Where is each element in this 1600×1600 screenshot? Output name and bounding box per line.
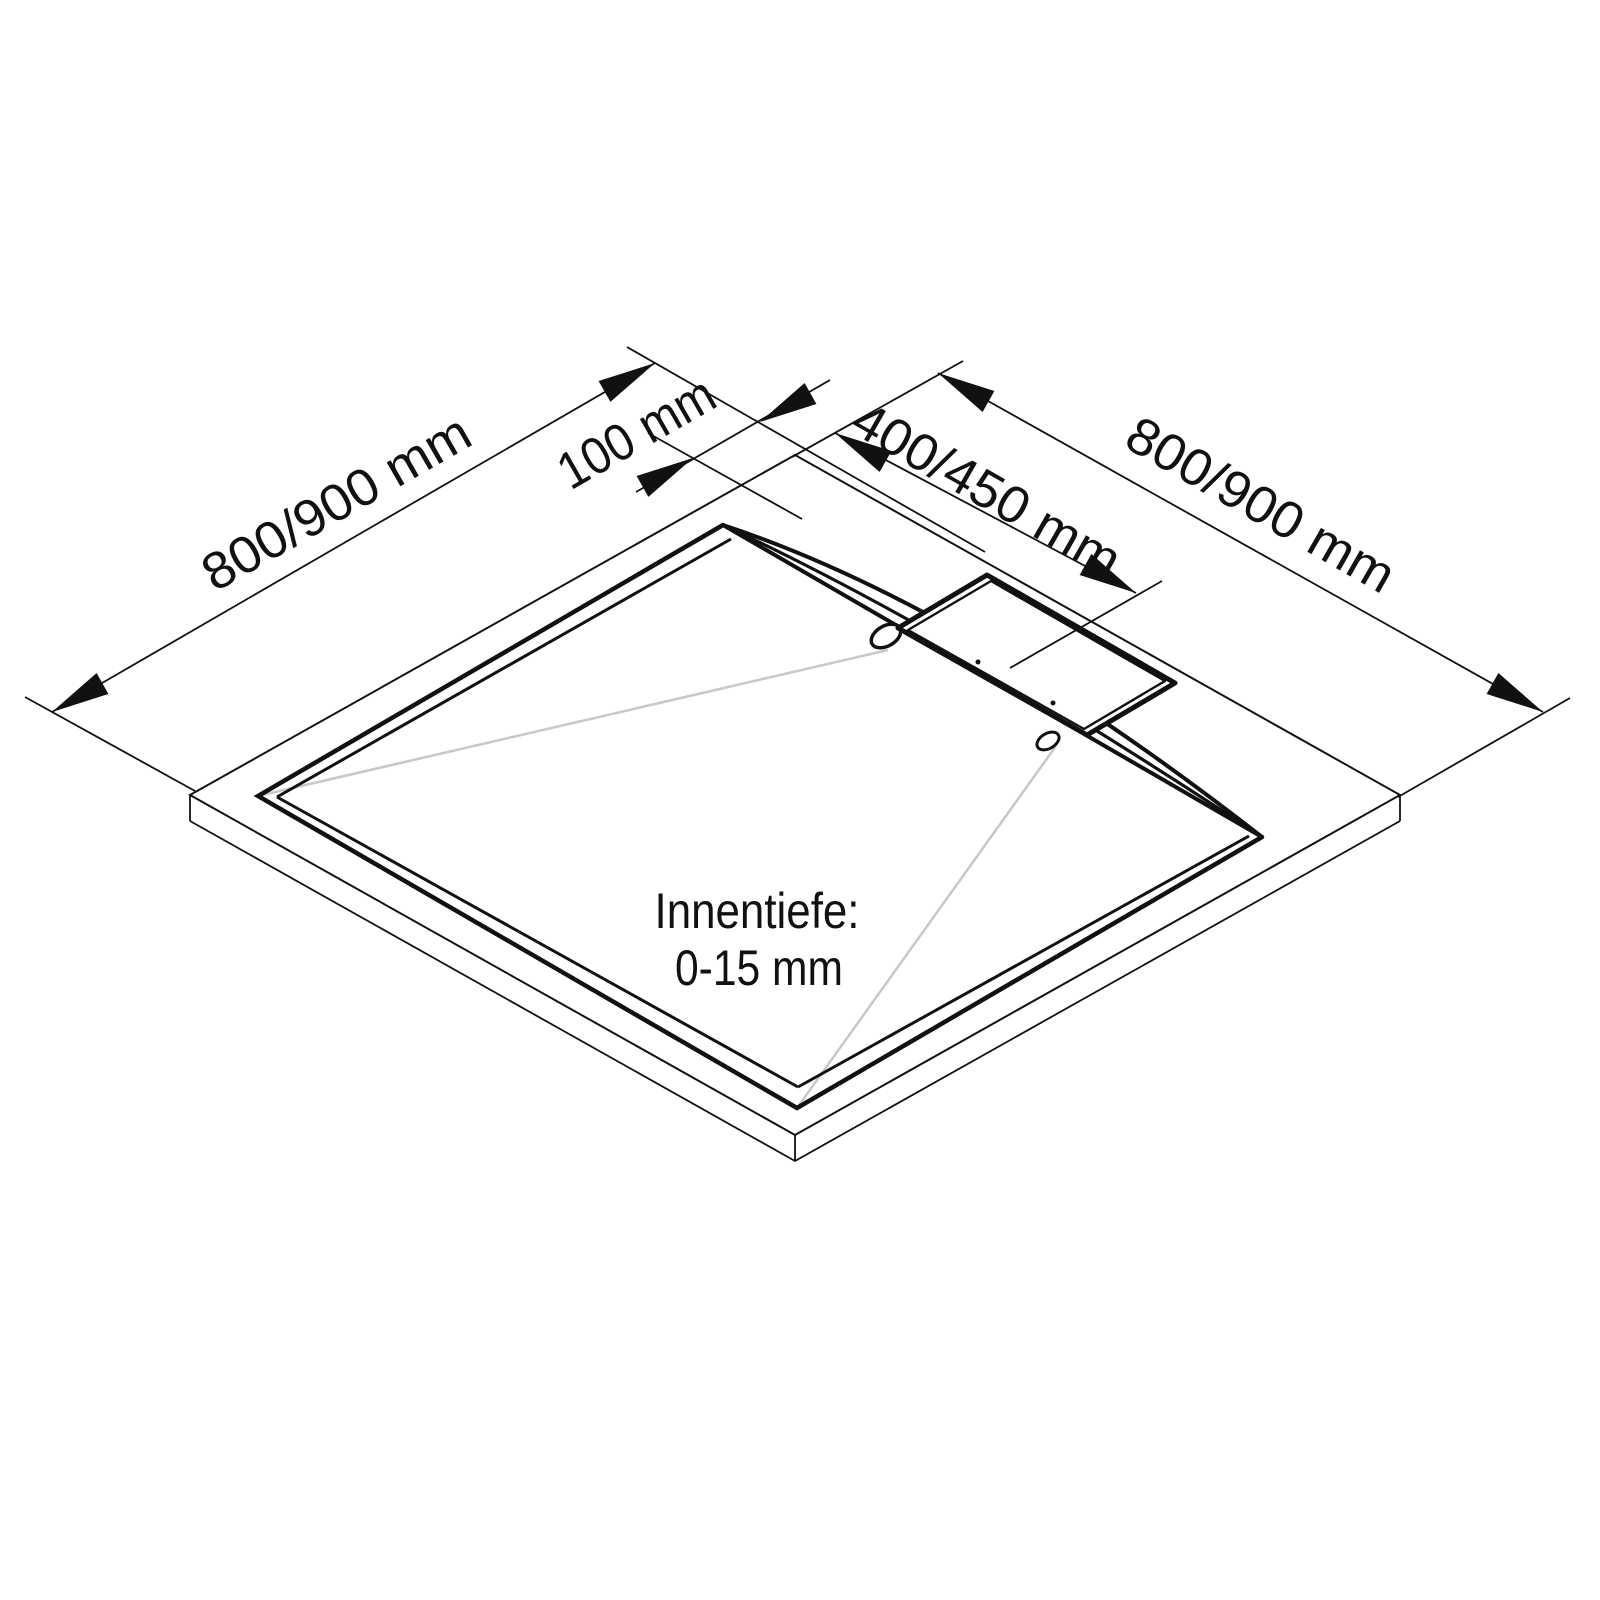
dimension-drain-offset: 400/450 mm — [792, 391, 1136, 593]
dimension-drain-offset-label: 400/450 mm — [842, 391, 1131, 590]
technical-drawing: 800/900 mm 100 mm 400/450 mm 800/900 mm … — [0, 0, 1600, 1600]
inner-depth-annotation: Innentiefe: 0-15 mm — [655, 883, 860, 996]
cover-mark — [976, 660, 981, 665]
dimension-left-edge: 800/900 mm — [25, 347, 985, 791]
dimension-rim-inset-label: 100 mm — [548, 365, 726, 501]
drain-trough-left — [867, 619, 905, 652]
dim-arrow — [1487, 673, 1543, 712]
dimension-right-edge-label: 800/900 mm — [1116, 406, 1405, 605]
inner-depth-line2: 0-15 mm — [675, 940, 843, 996]
dim-arrow — [760, 383, 816, 422]
slope-guide-lines — [258, 650, 1056, 1108]
drawing-canvas: 800/900 mm 100 mm 400/450 mm 800/900 mm … — [0, 0, 1600, 1600]
inner-depth-line1: Innentiefe: — [655, 883, 860, 939]
tray-basin — [258, 525, 1262, 1108]
drain-cover — [898, 575, 1175, 735]
dim-arrow — [938, 373, 994, 412]
drain-trough-right — [1034, 729, 1062, 754]
dimension-right-edge: 800/900 mm — [938, 373, 1570, 797]
dimension-left-edge-label: 800/900 mm — [192, 404, 481, 603]
dim-arrow — [637, 458, 693, 497]
dim-arrow — [52, 673, 108, 712]
cover-mark — [1051, 701, 1056, 706]
dimension-rim-inset: 100 mm — [548, 365, 830, 519]
